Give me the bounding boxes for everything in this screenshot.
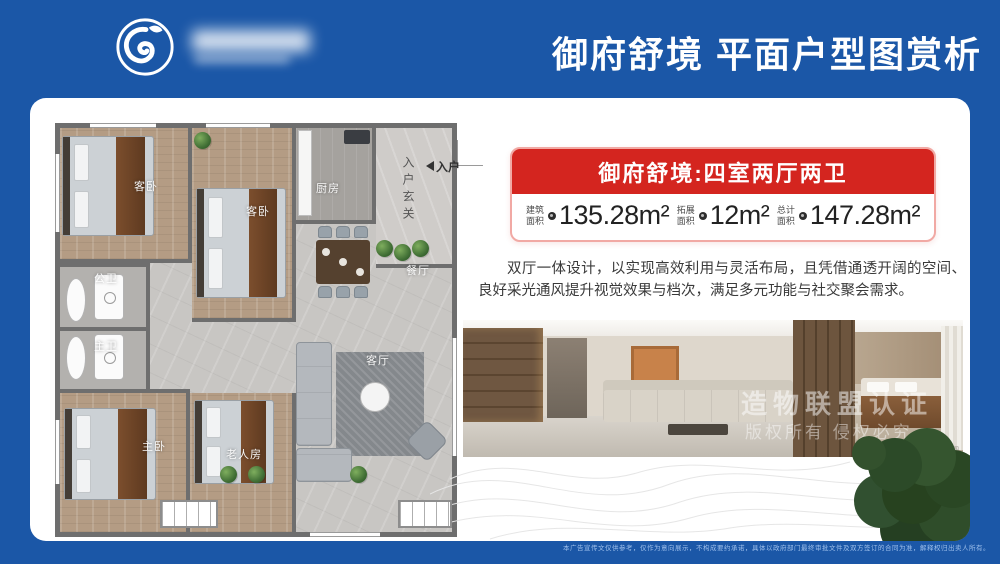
bay-window: [160, 500, 218, 528]
dining-chair: [318, 286, 332, 298]
stat-label: 拓展 面积: [677, 205, 695, 226]
label-guest-bedroom-2: 客卧: [246, 203, 270, 219]
potted-plant: [394, 244, 411, 261]
interior-photo: 造物联盟认证 版权所有 侵权必究 效果图: [463, 320, 963, 457]
stat-bullet-icon: [699, 212, 707, 220]
label-living: 客厅: [366, 352, 390, 368]
window: [206, 123, 270, 128]
potted-plant: [248, 466, 265, 483]
label-public-bathroom: 公卫: [94, 270, 118, 286]
watermark-line-1: 造物联盟认证: [741, 384, 933, 421]
potted-plant: [350, 466, 367, 483]
label-master-bedroom: 主卧: [142, 438, 166, 454]
photo-curtain: [941, 326, 963, 450]
wall: [192, 318, 296, 322]
bed-headboard: [63, 137, 70, 235]
window: [90, 123, 156, 128]
potted-plant: [376, 240, 393, 257]
description-text: 双厅一体设计，以实现高效利用与灵活布局，且凭借通透开阔的空间、良好采光通风提升视…: [478, 258, 966, 303]
area-stats-row: 建筑 面积 135.28m² 拓展 面积 12m² 总计: [512, 194, 934, 231]
watermark-line-2: 版权所有 侵权必究: [745, 418, 913, 443]
bay-window: [398, 500, 452, 528]
bed-pillow: [206, 446, 221, 477]
bed-master: [64, 408, 156, 500]
tree-decoration: [852, 436, 886, 470]
dining-chair: [354, 226, 368, 238]
dining-chair: [318, 226, 332, 238]
label-elder-room: 老人房: [226, 446, 262, 462]
stat-bullet-icon: [799, 212, 807, 220]
label-dining: 餐厅: [406, 262, 430, 278]
sofa: [296, 342, 332, 446]
brand-slogan-blur-line: [194, 56, 290, 63]
wall: [292, 128, 296, 322]
dining-chair: [354, 286, 368, 298]
label-kitchen: 厨房: [316, 180, 340, 196]
wall: [188, 128, 192, 259]
bed-pillow: [74, 191, 89, 228]
window: [55, 154, 60, 232]
bed-headboard: [195, 401, 202, 483]
stat-label: 建筑 面积: [526, 205, 544, 226]
wall: [60, 327, 146, 331]
kitchen-appliance: [344, 130, 370, 144]
label-master-bathroom: 主卫: [94, 338, 118, 354]
stat-built-area: 建筑 面积 135.28m²: [526, 200, 669, 231]
stat-value: 135.28m²: [559, 200, 669, 231]
bed-pillow: [74, 144, 89, 181]
floorplan: 客卧 客卧 厨房 入户玄关 餐厅 公卫 主卫 客厅 主卧 老人房: [55, 123, 457, 537]
entry-door-swing: [457, 140, 483, 166]
brand-name-blur-line: [192, 30, 310, 52]
stat-value: 147.28m²: [810, 200, 920, 231]
bed-guest-2: [196, 188, 286, 298]
window: [452, 338, 457, 456]
bed-pillow: [208, 248, 223, 289]
brand-name-blurred: [192, 30, 322, 66]
entry-arrow-icon: [426, 161, 434, 171]
photo-coffee-table: [668, 424, 728, 435]
bathtub: [66, 278, 86, 322]
window: [310, 532, 380, 537]
content-card: 客卧 客卧 厨房 入户玄关 餐厅 公卫 主卫 客厅 主卧 老人房 入户 御府舒境…: [30, 98, 970, 541]
stat-bullet-icon: [548, 212, 556, 220]
bed-headboard: [65, 409, 72, 499]
dining-table: [316, 240, 370, 284]
bed-pillow: [208, 197, 223, 238]
stat-extended-area: 拓展 面积 12m²: [677, 200, 770, 231]
poster-page: 御府舒境 平面户型图赏析: [0, 0, 1000, 564]
entry-arrow-label: 入户: [436, 160, 460, 174]
potted-plant: [220, 466, 237, 483]
unit-info-card: 御府舒境:四室两厅两卫 建筑 面积 135.28m² 拓展 面积: [510, 147, 936, 242]
footer-disclaimer: 本广告宣传文仅供参考，仅作为意向展示，不构成要约承诺，具体以政府部门最终审批文件…: [560, 542, 990, 552]
brand-dragon-logo-icon: [114, 16, 176, 78]
coffee-table: [360, 382, 390, 412]
photo-cabinet: [463, 328, 543, 422]
label-entry-hall: 入户玄关: [400, 156, 417, 224]
bed-headboard: [197, 189, 204, 297]
wall: [60, 389, 190, 393]
dining-chair: [336, 226, 350, 238]
bed-pillow: [206, 407, 221, 438]
bed-pillow: [76, 459, 91, 493]
photo-hallway: [547, 338, 587, 418]
sofa-chaise: [296, 448, 352, 482]
wall: [296, 220, 376, 224]
unit-type-banner: 御府舒境:四室两厅两卫: [512, 149, 934, 194]
potted-plant: [412, 240, 429, 257]
wall: [146, 263, 150, 389]
bathtub: [66, 336, 86, 380]
stat-value: 12m²: [710, 200, 770, 231]
bed-blanket: [118, 409, 147, 499]
bed-pillow: [76, 415, 91, 449]
entry-arrow: 入户: [426, 158, 460, 175]
wall: [60, 263, 150, 267]
photo-caption: 效果图: [938, 445, 959, 455]
wall: [372, 128, 376, 224]
stat-label: 总计 面积: [777, 205, 795, 226]
dining-chair: [336, 286, 350, 298]
window: [55, 420, 60, 484]
stat-total-area: 总计 面积 147.28m²: [777, 200, 920, 231]
potted-plant: [194, 132, 211, 149]
photo-wall-art: [631, 346, 679, 384]
label-guest-bedroom-1: 客卧: [134, 178, 158, 194]
page-title: 御府舒境 平面户型图赏析: [552, 26, 982, 78]
kitchen-counter: [298, 130, 312, 216]
